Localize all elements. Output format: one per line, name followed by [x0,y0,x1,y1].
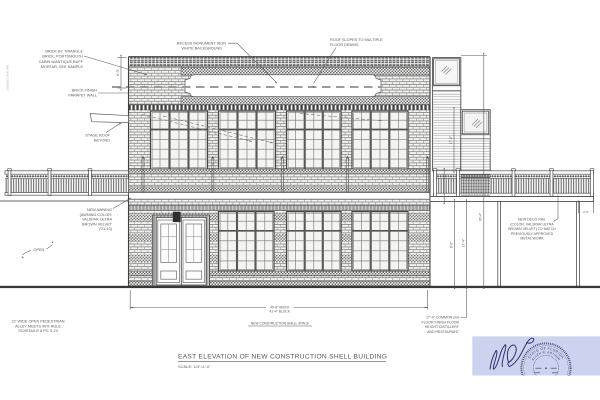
svg-text:SCALE: 1/4"=1'-0": SCALE: 1/4"=1'-0" [178,364,211,369]
svg-text:RECESS MONUMENT SIGN: RECESS MONUMENT SIGN [177,42,227,46]
svg-text:FLOOR FINISH FLOOR: FLOOR FINISH FLOOR [421,320,459,324]
svg-text:17'-4" COMMON 2nd: 17'-4" COMMON 2nd [426,316,459,320]
svg-text:AND RESTAURANT: AND RESTAURANT [427,330,460,334]
svg-text:HEIGHT DISTILLERY: HEIGHT DISTILLERY [425,325,460,329]
svg-text:OPEN: OPEN [34,248,45,252]
svg-text:VALSPAR ULTRA: VALSPAR ULTRA [82,218,113,222]
svg-text:(AWNING COLOR:: (AWNING COLOR: [80,213,112,217]
svg-text:6'-0": 6'-0" [116,68,120,75]
svg-text:FLOOR DRAINS: FLOOR DRAINS [330,43,359,47]
svg-text:BRICK, PORTSMOUTH: BRICK, PORTSMOUTH [42,55,83,59]
svg-text:EAST ELEVATION OF NEW CONSTRUC: EAST ELEVATION OF NEW CONSTRUCTION SHELL… [178,354,387,361]
svg-text:9'-8": 9'-8" [449,241,453,248]
svg-text:CABIN w/ANTIQUE BUFF: CABIN w/ANTIQUE BUFF [39,60,84,64]
svg-text:ROOF SLOPES TO MULTIPLE: ROOF SLOPES TO MULTIPLE [330,38,383,42]
svg-text:2'-6": 2'-6" [583,210,589,214]
svg-text:41'-4" BLOCK: 41'-4" BLOCK [269,310,290,314]
svg-text:BROWN VELVET: BROWN VELVET [82,222,113,226]
svg-text:NEW AWNING: NEW AWNING [87,208,112,212]
svg-text:2/18/2021 10:41 AM: 2/18/2021 10:41 AM [6,65,10,91]
svg-text:Y21-10): Y21-10) [98,227,112,231]
svg-text:NEW DECO RAIL: NEW DECO RAIL [518,218,546,222]
svg-text:BRICK FINISH: BRICK FINISH [72,89,97,93]
svg-text:BRICK BY TRIANGLE: BRICK BY TRIANGLE [45,49,83,53]
svg-text:17'-4": 17'-4" [461,238,465,247]
svg-text:30'-4": 30'-4" [479,212,483,221]
svg-text:17'-8": 17'-8" [449,135,453,144]
svg-text:WHITE BACKGROUND: WHITE BACKGROUND [181,47,222,51]
svg-text:NEW CONSTRUCTION SHELL SPACE: NEW CONSTRUCTION SHELL SPACE [251,322,310,326]
svg-text:BEYOND: BEYOND [94,139,110,143]
svg-text:METAL WORK: METAL WORK [520,237,544,241]
svg-text:22' WIDE OPEN PEDESTRIAN: 22' WIDE OPEN PEDESTRIAN [11,320,64,324]
svg-text:PREVIOUSLY APPROVED: PREVIOUSLY APPROVED [511,232,554,236]
svg-text:SCHEDULE 5 PG S-23: SCHEDULE 5 PG S-23 [18,329,57,333]
svg-text:BROWN VELVET) TO MATCH: BROWN VELVET) TO MATCH [508,227,556,231]
svg-text:ALLEY MEETS 90% RULE: ALLEY MEETS 90% RULE [15,324,61,328]
svg-text:PARAPET WALL: PARAPET WALL [68,94,97,98]
svg-text:MORTAR, SEE SAMPLE: MORTAR, SEE SAMPLE [41,65,84,69]
svg-text:(COLOR: VALSPAR ULTRA: (COLOR: VALSPAR ULTRA [510,222,554,226]
svg-text:STAGE ROOF: STAGE ROOF [85,134,110,138]
